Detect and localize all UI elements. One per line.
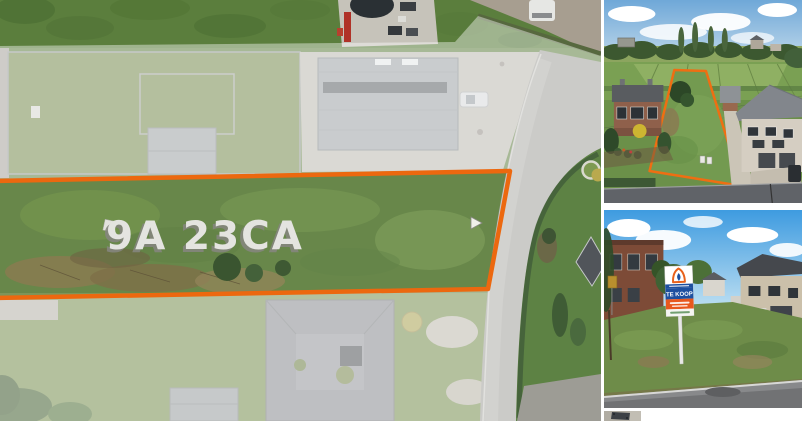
thumb-aerial-oblique-photo[interactable] (604, 0, 802, 203)
barn (618, 38, 635, 47)
parked-car (788, 165, 801, 182)
neighbour-patio (337, 0, 438, 47)
thumb-partial-photo[interactable] (604, 411, 641, 421)
small-road-sign (608, 276, 617, 288)
partial-photo-scene (604, 411, 641, 421)
oblique-aerial-scene (604, 0, 802, 203)
street-scene: TE KOOP (604, 210, 802, 408)
plot-area-label: 9A 23CA (106, 214, 304, 259)
main-aerial-photo[interactable]: 9A 23CA 9A 23CA (0, 0, 601, 421)
white-house (720, 85, 802, 188)
red-container (344, 12, 351, 42)
main-aerial-scene: 9A 23CA 9A 23CA (0, 0, 601, 421)
sign-phone-band (666, 299, 694, 310)
listing-photo-collage: 9A 23CA 9A 23CA (0, 0, 802, 421)
sign-te-koop-text: TE KOOP (666, 292, 693, 299)
yellow-shrub (633, 124, 647, 138)
small-garage (720, 86, 741, 103)
distant-house (703, 280, 725, 296)
garage-door (758, 153, 775, 168)
thumb-street-photo[interactable]: TE KOOP (604, 210, 802, 408)
